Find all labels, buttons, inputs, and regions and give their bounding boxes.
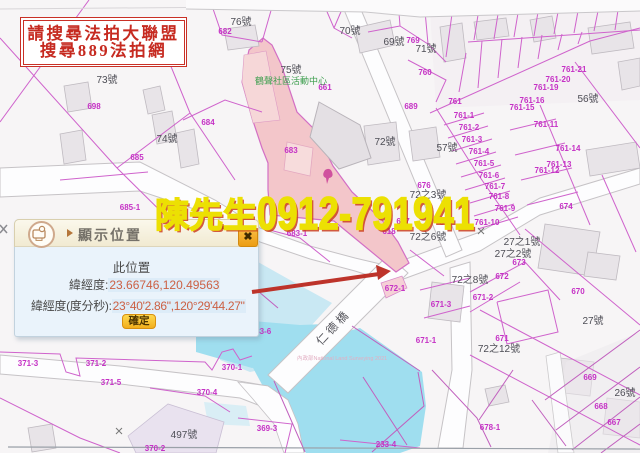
svg-text:26號: 26號 [614, 386, 635, 399]
svg-text:27號: 27號 [582, 314, 603, 327]
svg-text:761-10: 761-10 [475, 218, 500, 227]
svg-text:682: 682 [218, 27, 232, 36]
svg-text:761-8: 761-8 [489, 192, 510, 201]
svg-text:667: 667 [607, 418, 621, 427]
svg-text:761-5: 761-5 [474, 159, 495, 168]
svg-text:371-5: 371-5 [101, 378, 122, 387]
svg-text:761-2: 761-2 [459, 123, 480, 132]
svg-text:671-3: 671-3 [431, 300, 452, 309]
svg-text:761-9: 761-9 [495, 204, 516, 213]
svg-text:674: 674 [559, 202, 573, 211]
svg-text:370-1: 370-1 [222, 363, 243, 372]
svg-text:761-3: 761-3 [462, 135, 483, 144]
svg-text:497號: 497號 [171, 428, 198, 441]
svg-text:69號: 69號 [383, 35, 404, 48]
svg-text:72號: 72號 [374, 135, 395, 148]
svg-text:56號: 56號 [577, 92, 598, 105]
svg-text:671: 671 [495, 334, 509, 343]
svg-text:761-4: 761-4 [469, 147, 490, 156]
svg-text:671-2: 671-2 [473, 293, 494, 302]
svg-text:683: 683 [284, 146, 298, 155]
svg-text:74號: 74號 [156, 132, 177, 145]
svg-text:684: 684 [201, 118, 215, 127]
svg-text:671-1: 671-1 [416, 336, 437, 345]
svg-text:27之2號: 27之2號 [495, 247, 532, 260]
svg-text:761-20: 761-20 [546, 75, 571, 84]
svg-text:761: 761 [448, 97, 462, 106]
svg-text:669: 669 [583, 373, 597, 382]
svg-text:685-1: 685-1 [120, 203, 141, 212]
svg-text:685: 685 [130, 153, 144, 162]
svg-text:761-13: 761-13 [547, 160, 572, 169]
svg-text:761-16: 761-16 [520, 96, 545, 105]
svg-text:670: 670 [571, 287, 585, 296]
svg-text:57號: 57號 [436, 141, 457, 154]
svg-text:73號: 73號 [96, 73, 117, 86]
svg-text:371-3: 371-3 [18, 359, 39, 368]
svg-text:761-11: 761-11 [534, 120, 559, 129]
svg-text:761-14: 761-14 [556, 144, 581, 153]
svg-text:370-2: 370-2 [145, 444, 166, 453]
svg-text:678-1: 678-1 [480, 423, 501, 432]
svg-text:72之8號: 72之8號 [452, 273, 489, 286]
svg-text:672: 672 [495, 272, 509, 281]
svg-text:70號: 70號 [339, 24, 360, 37]
svg-text:689: 689 [404, 102, 418, 111]
svg-text:內政部National Land Surveying 202: 內政部National Land Surveying 2021 [297, 354, 387, 362]
svg-text:761-1: 761-1 [454, 111, 475, 120]
svg-text:鶴聲社區活動中心: 鶴聲社區活動中心 [255, 75, 327, 86]
svg-text:369-3: 369-3 [257, 424, 278, 433]
svg-text:370-4: 370-4 [197, 388, 218, 397]
svg-text:698: 698 [87, 102, 101, 111]
svg-text:668: 668 [594, 402, 608, 411]
svg-text:27之1號: 27之1號 [504, 235, 541, 248]
svg-text:761-21: 761-21 [562, 65, 587, 74]
svg-text:233-4: 233-4 [376, 440, 397, 449]
svg-text:72之12號: 72之12號 [478, 342, 520, 355]
svg-text:76號: 76號 [230, 15, 251, 28]
svg-text:75號: 75號 [280, 63, 301, 76]
svg-text:761-19: 761-19 [534, 83, 559, 92]
svg-text:371-2: 371-2 [86, 359, 107, 368]
svg-text:760: 760 [418, 68, 432, 77]
svg-text:761-6: 761-6 [479, 171, 500, 180]
svg-text:761-7: 761-7 [485, 182, 506, 191]
svg-text:71號: 71號 [415, 42, 436, 55]
